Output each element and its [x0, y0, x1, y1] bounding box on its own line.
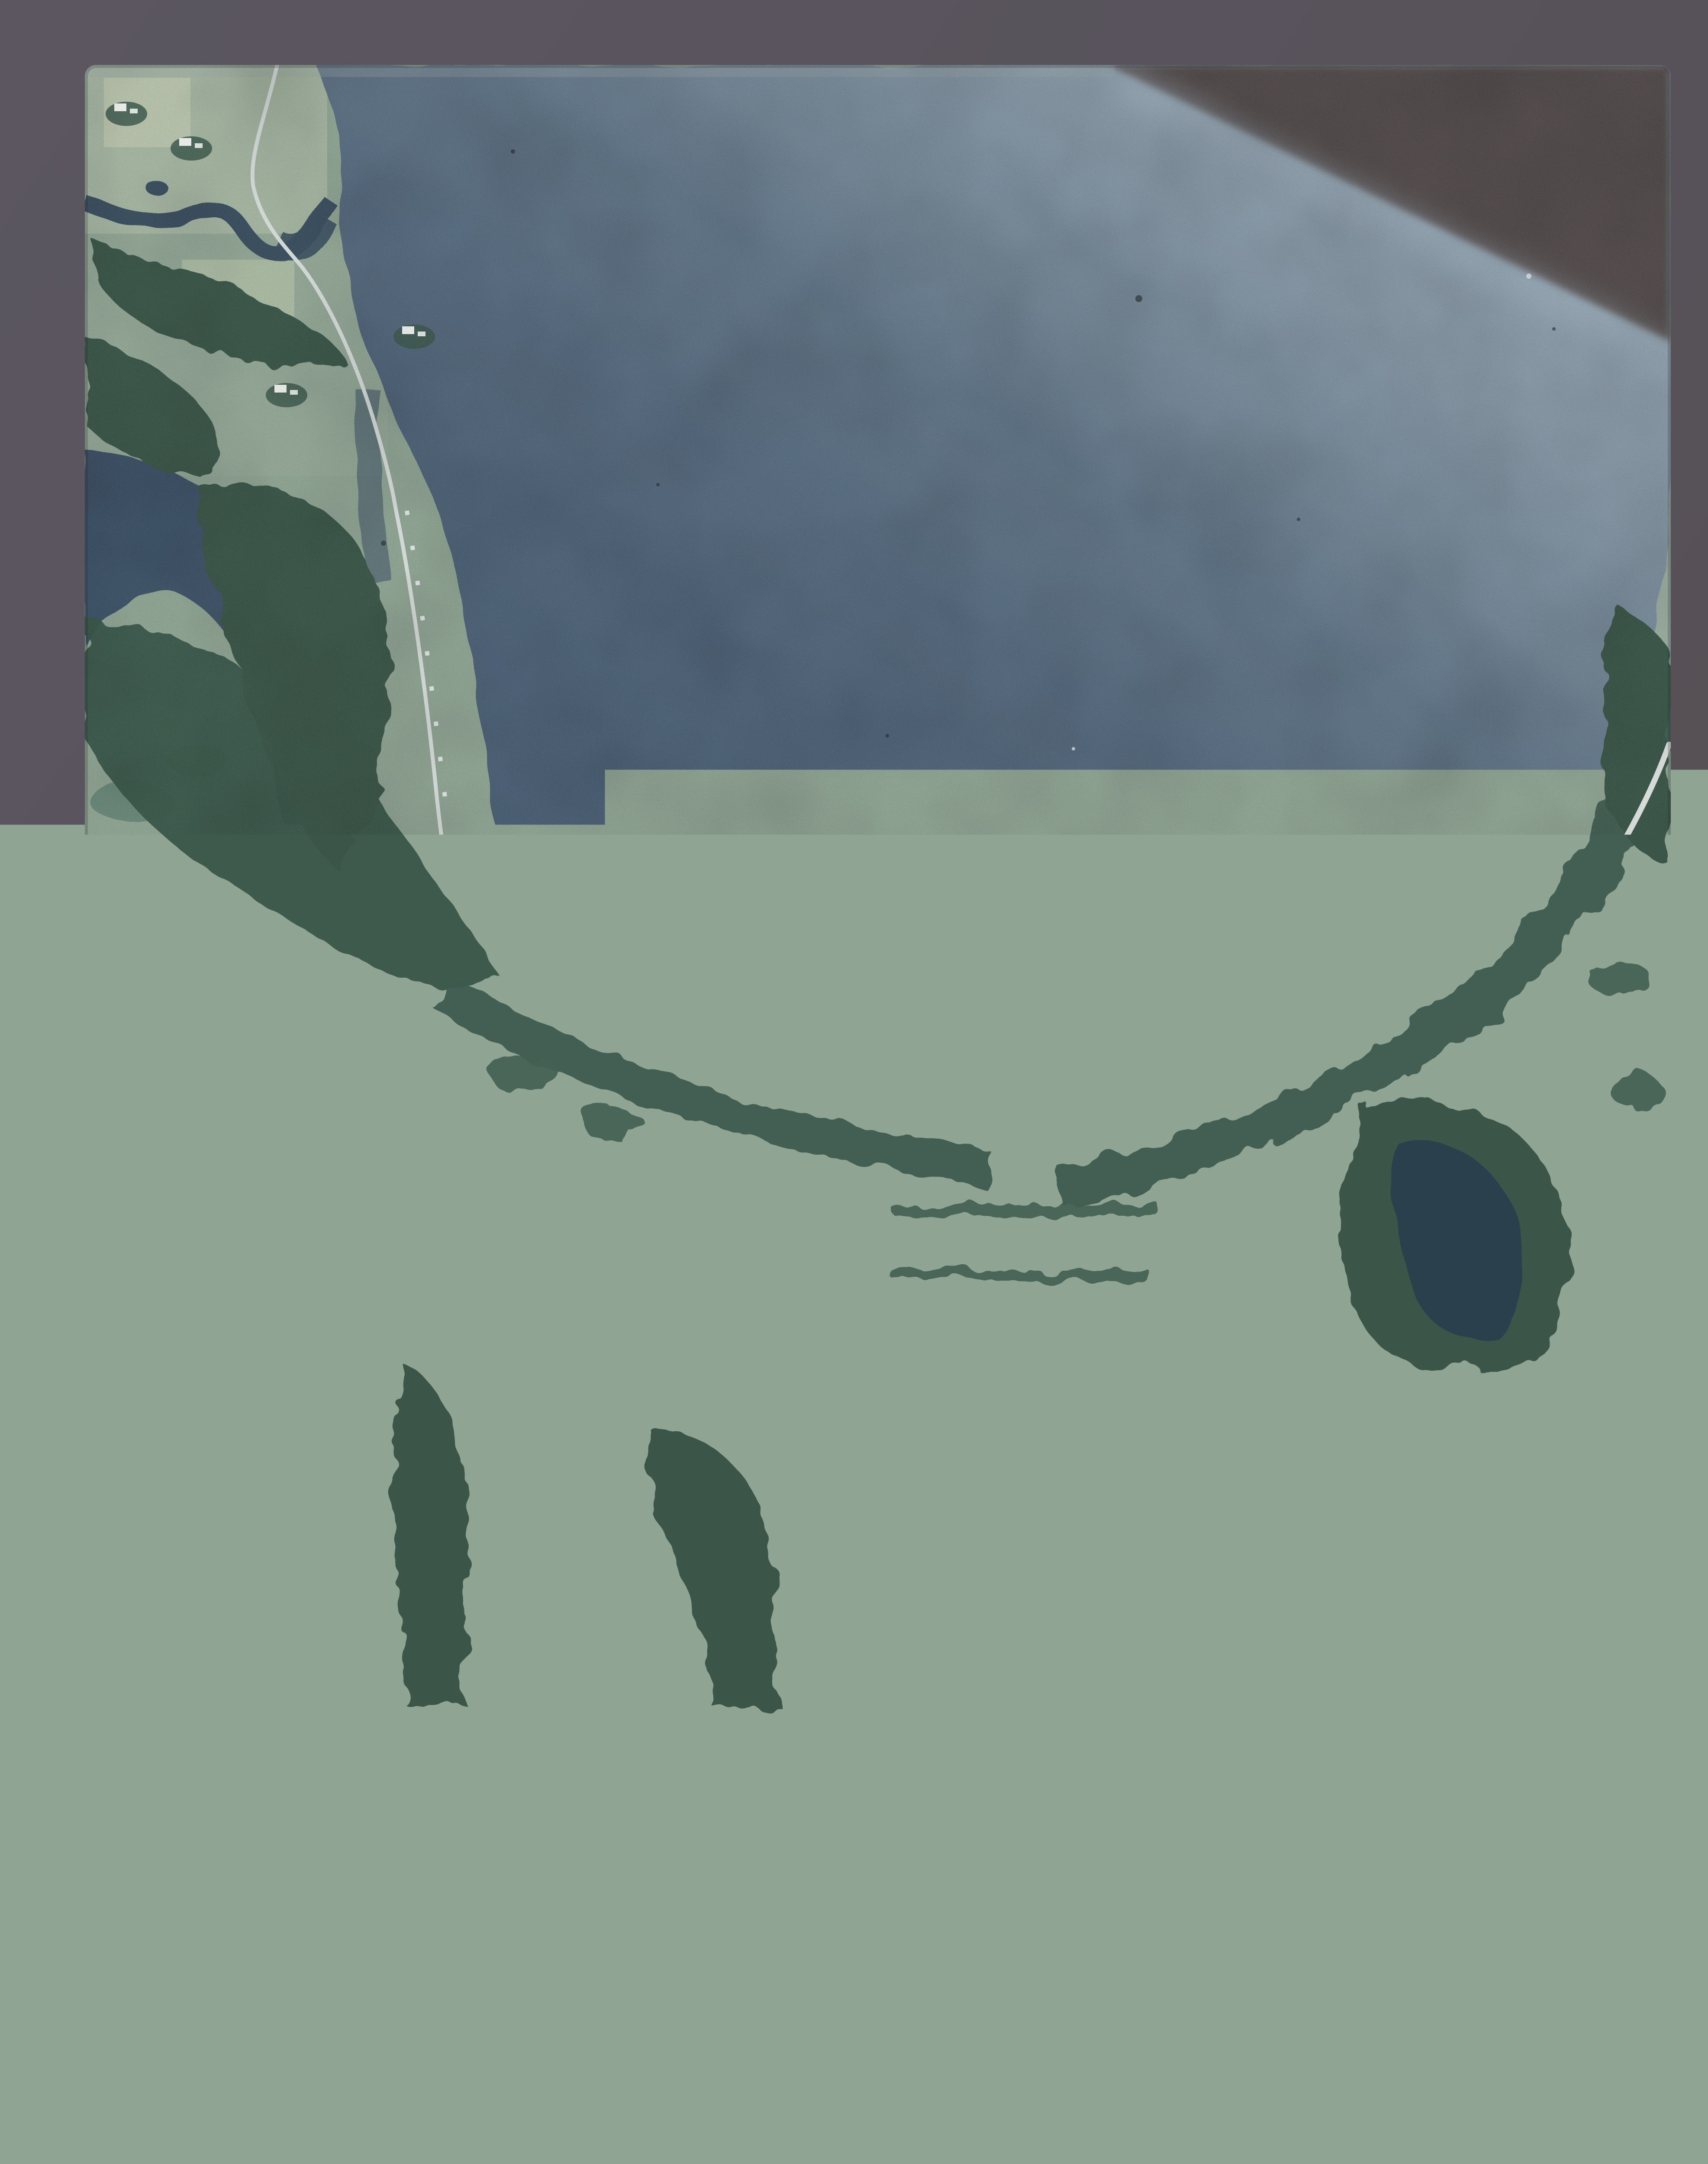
aerial-photo-slide: [0, 0, 1708, 2164]
film-grain-light: [85, 65, 1671, 2164]
